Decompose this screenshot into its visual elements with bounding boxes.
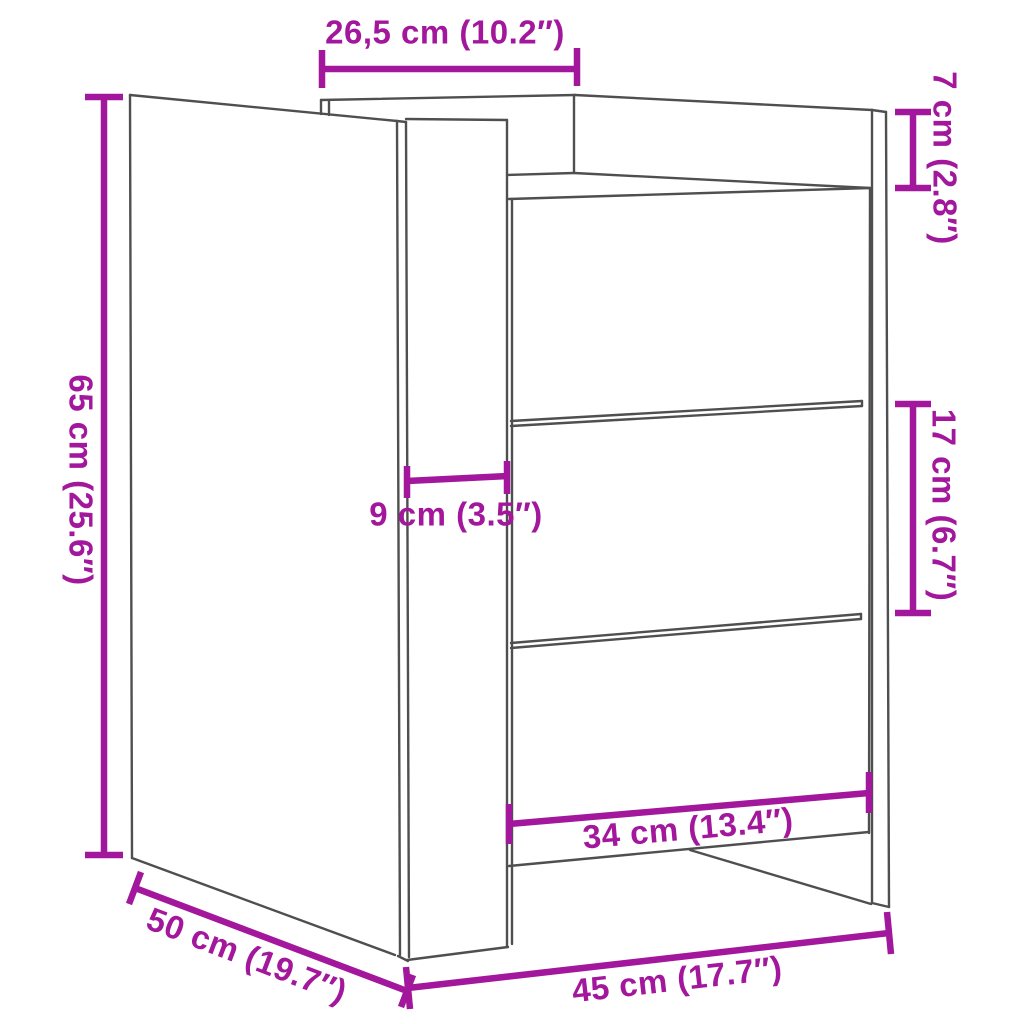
dimension-label-height: 65 cm (25.6″) (63, 374, 100, 585)
top-board-front-edge (406, 119, 507, 120)
diagram-canvas: 26,5 cm (10.2″) 65 cm (25.6″) 7 cm (2.8″… (0, 0, 1024, 1024)
dimension-label-top-width: 26,5 cm (10.2″) (325, 14, 565, 51)
dimension-label-side-offset: 9 cm (3.5″) (369, 496, 543, 533)
tick (406, 967, 410, 1009)
dimension-label-drawer-height: 17 cm (6.7″) (926, 409, 963, 601)
drawer-right-edge (869, 189, 870, 833)
left-panel-front-top-edge (397, 121, 406, 122)
tick (887, 912, 891, 954)
dimension-diagram: 26,5 cm (10.2″) 65 cm (25.6″) 7 cm (2.8″… (0, 0, 1024, 1024)
dimension-label-top-height: 7 cm (2.8″) (927, 71, 964, 245)
